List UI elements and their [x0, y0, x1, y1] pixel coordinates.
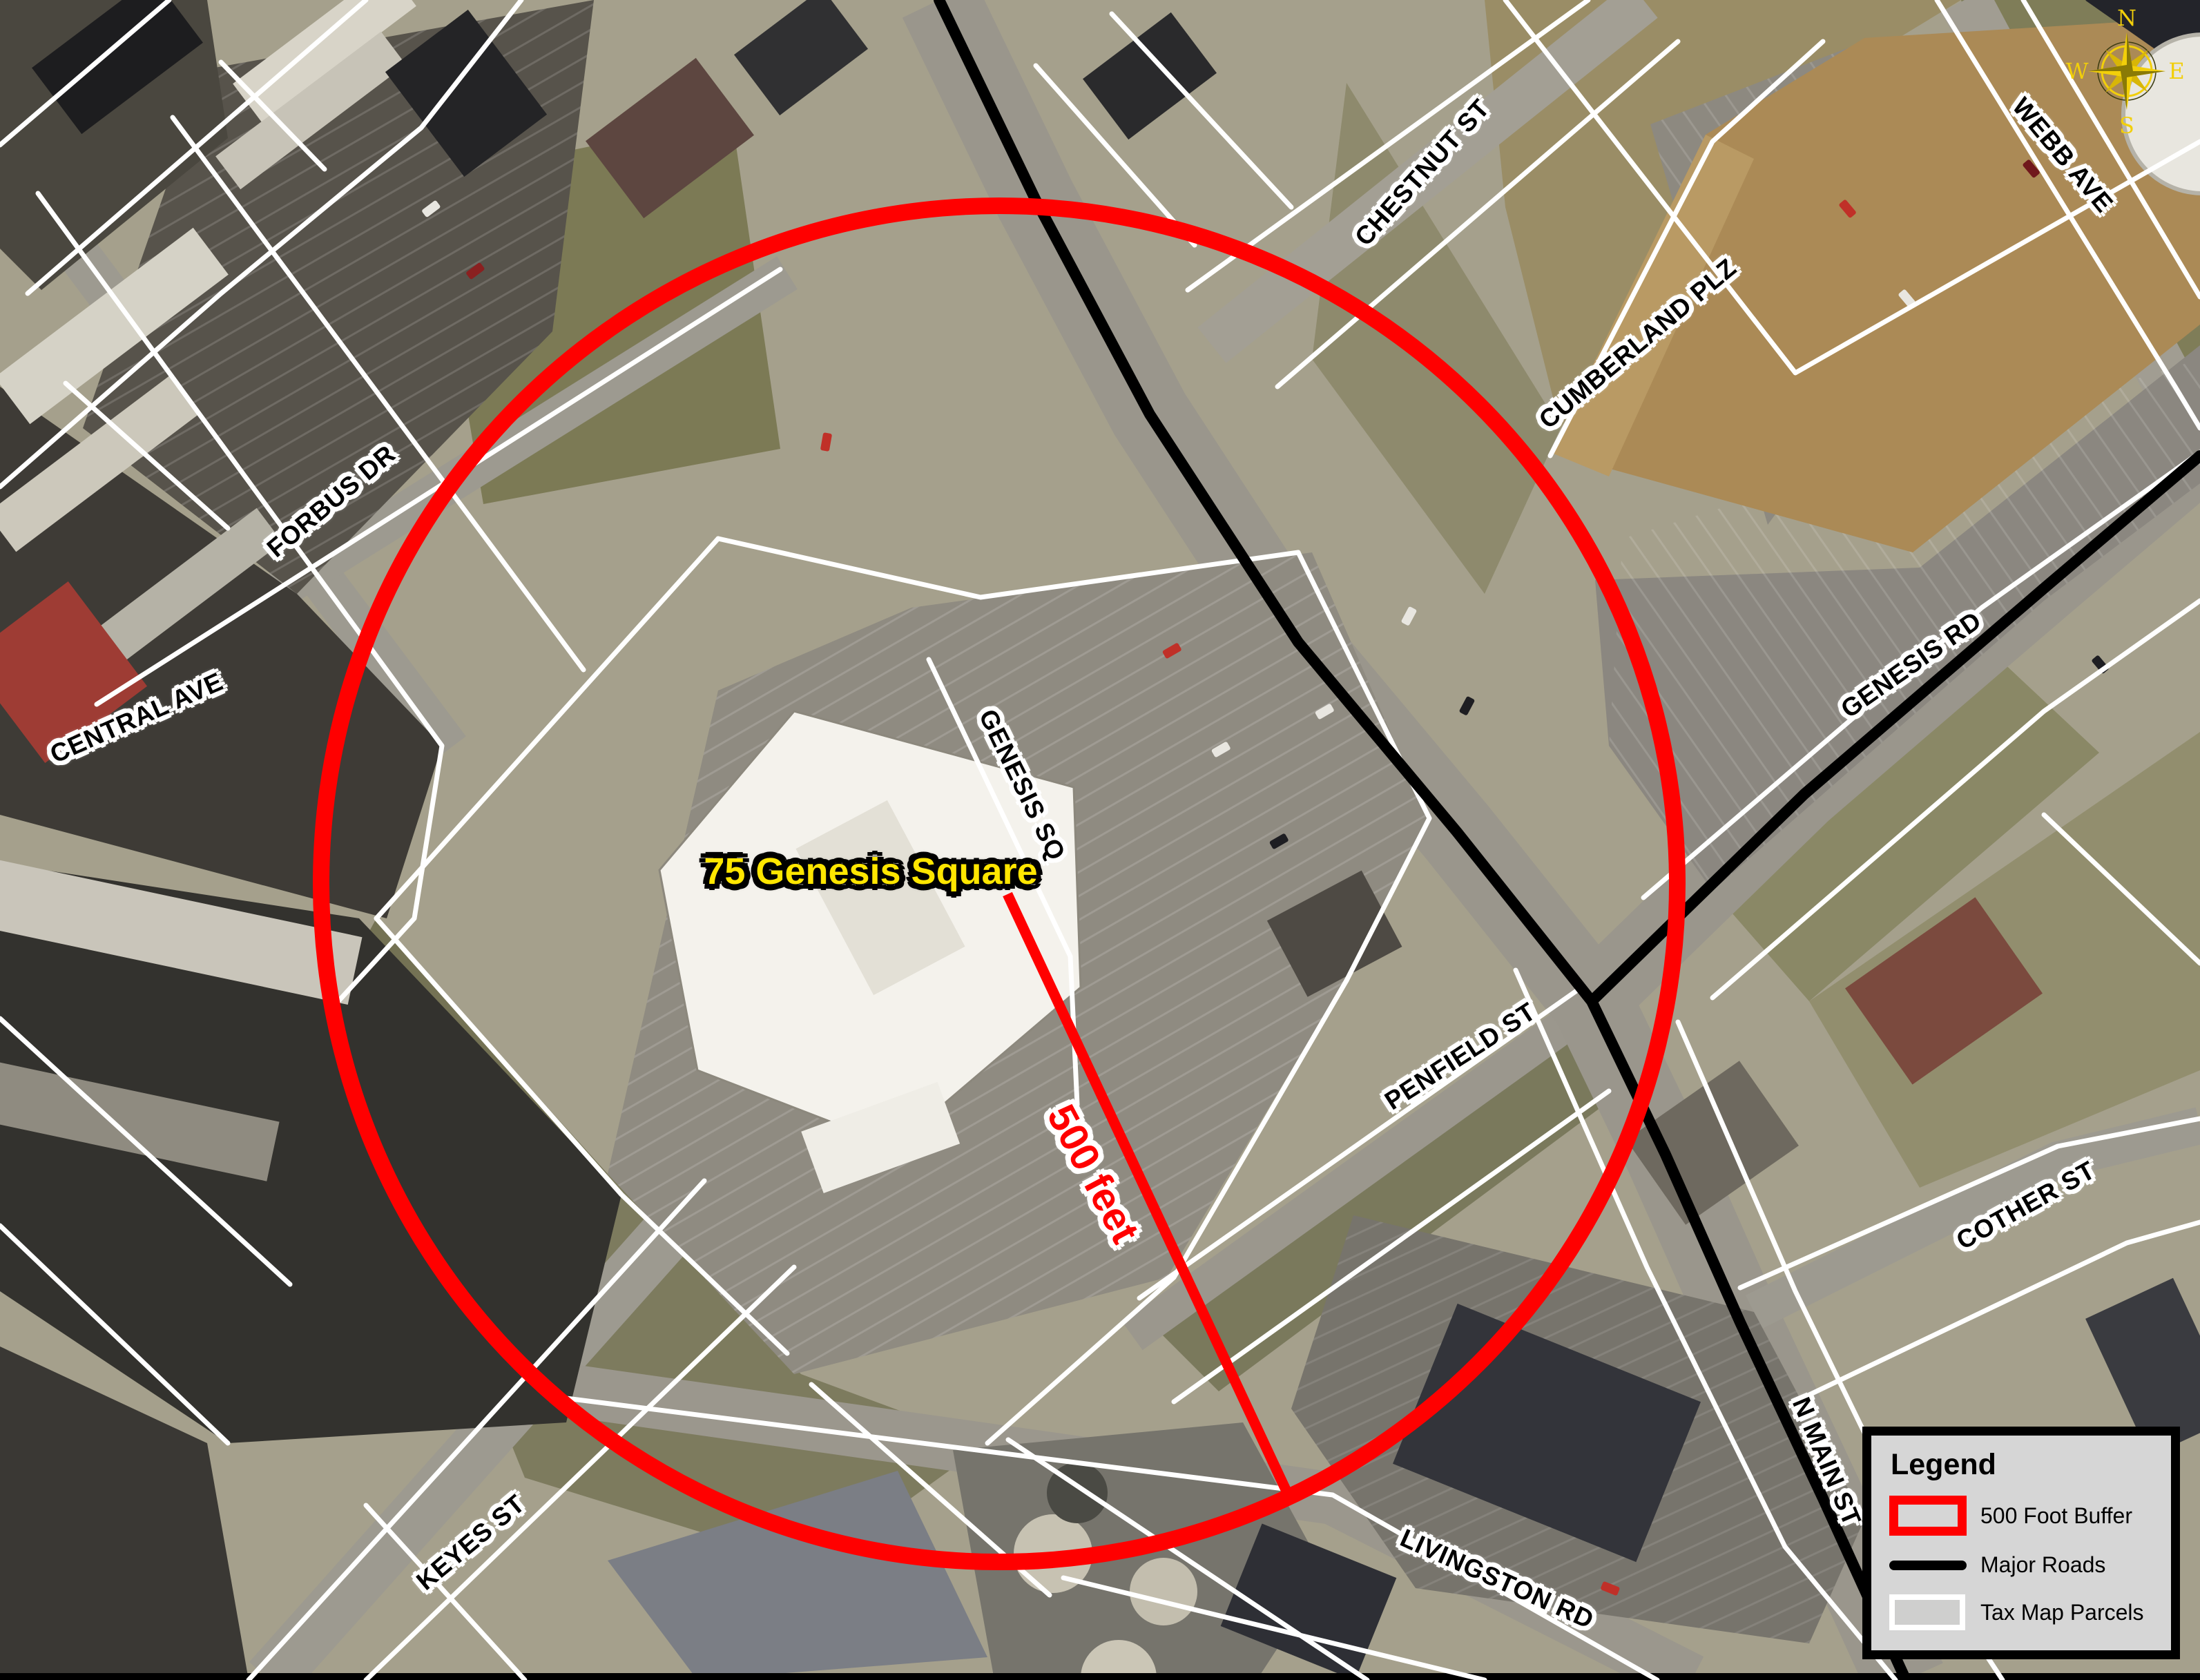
- legend-item-label: Major Roads: [1980, 1552, 2105, 1578]
- compass-e: E: [2168, 58, 2184, 84]
- legend-item-label: 500 Foot Buffer: [1980, 1503, 2132, 1529]
- compass-w: W: [2066, 58, 2089, 84]
- target-address-label: 75 Genesis Square: [704, 850, 1037, 893]
- road-swatch-icon: [1889, 1561, 1967, 1570]
- buffer-swatch-icon: [1889, 1496, 1967, 1536]
- radius-line: [1007, 894, 1289, 1497]
- legend-item-roads: Major Roads: [1889, 1552, 2153, 1578]
- compass-s: S: [2119, 113, 2134, 139]
- aerial-map: CHESTNUT ST WEBB AVE CUMBERLAND PLZ FORB…: [0, 0, 2200, 1680]
- legend: Legend 500 Foot Buffer Major Roads Tax M…: [1862, 1427, 2180, 1659]
- legend-item-buffer: 500 Foot Buffer: [1889, 1496, 2153, 1536]
- legend-title: Legend: [1891, 1448, 2153, 1482]
- compass-n: N: [2117, 5, 2136, 31]
- compass-rose-icon: N S E W: [2058, 2, 2196, 140]
- parcel-swatch-icon: [1889, 1594, 1965, 1630]
- legend-item-parcels: Tax Map Parcels: [1889, 1594, 2153, 1630]
- legend-item-label: Tax Map Parcels: [1980, 1600, 2144, 1625]
